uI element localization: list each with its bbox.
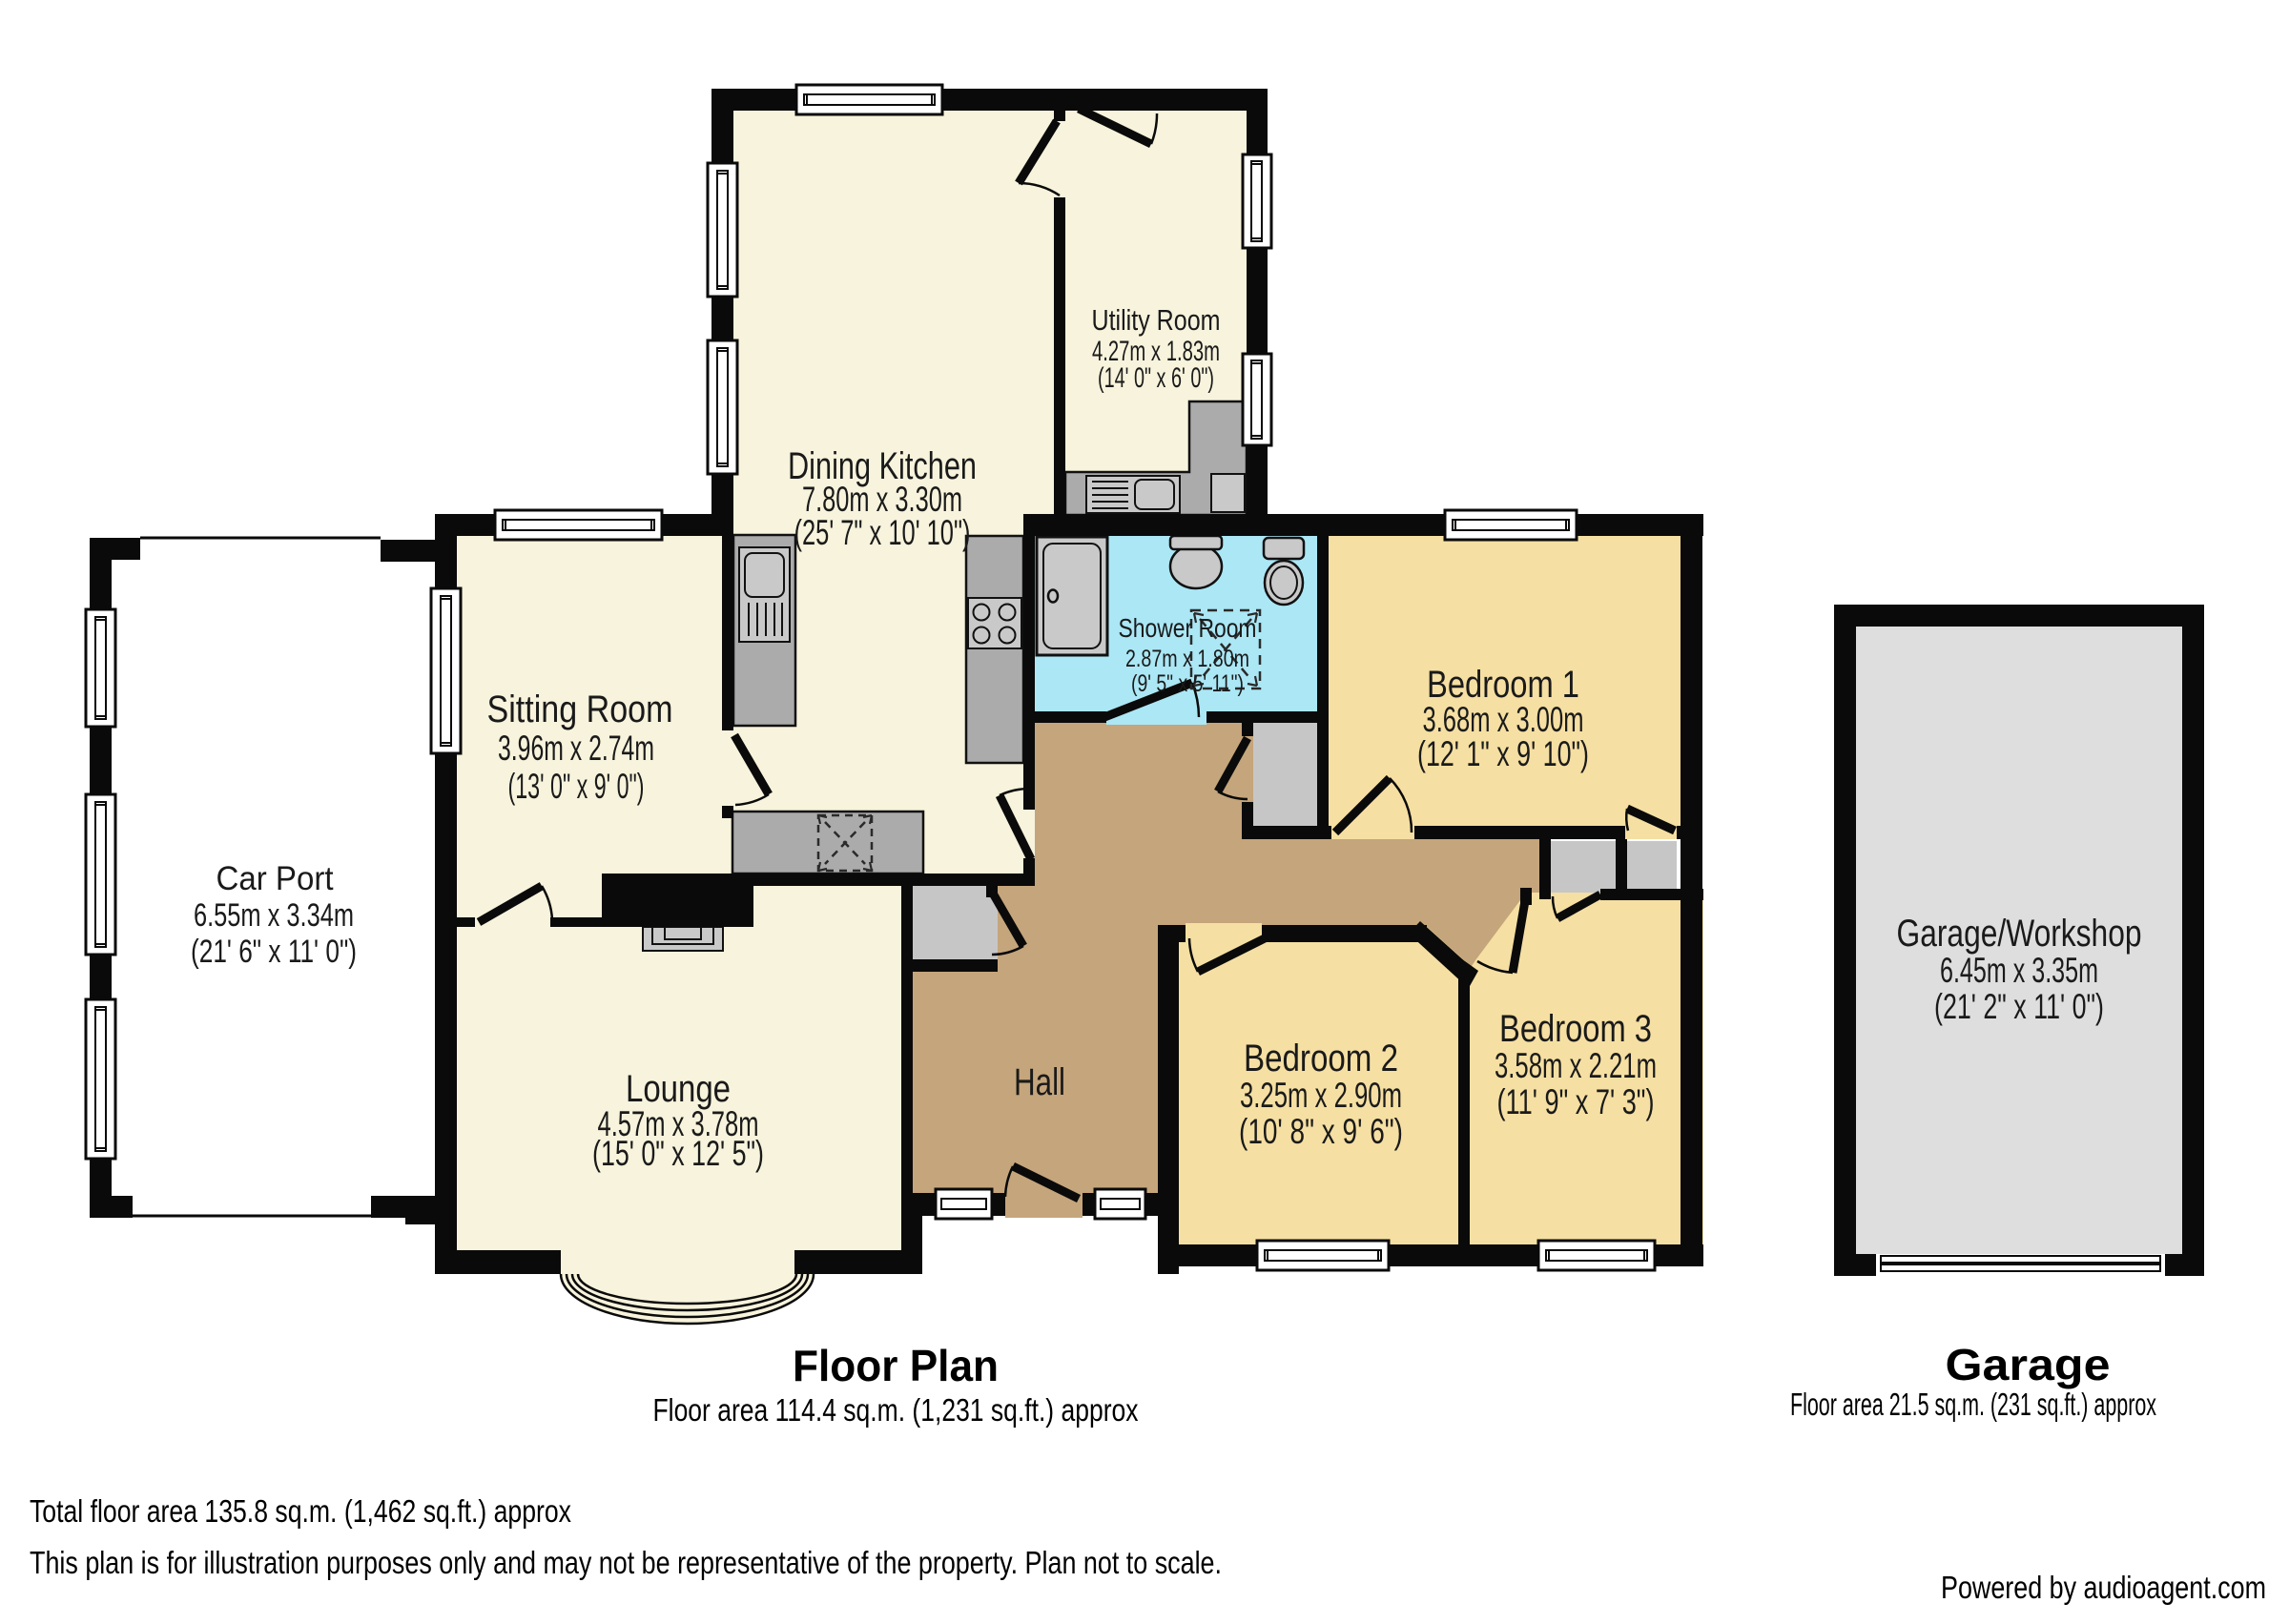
svg-text:Garage/Workshop: Garage/Workshop [1897, 913, 2142, 955]
svg-text:(9' 5" x 5' 11"): (9' 5" x 5' 11") [1131, 670, 1244, 697]
svg-text:Garage: Garage [1946, 1340, 2111, 1389]
svg-text:Bedroom 2: Bedroom 2 [1244, 1038, 1398, 1079]
svg-text:Floor Plan: Floor Plan [793, 1341, 999, 1390]
svg-text:(14' 0" x 6' 0"): (14' 0" x 6' 0") [1098, 362, 1214, 394]
svg-text:3.58m x 2.21m: 3.58m x 2.21m [1495, 1046, 1657, 1085]
svg-text:Sitting Room: Sitting Room [487, 689, 673, 730]
svg-text:(21' 2" x 11' 0"): (21' 2" x 11' 0") [1934, 987, 2104, 1026]
svg-text:3.25m x 2.90m: 3.25m x 2.90m [1240, 1076, 1402, 1115]
svg-text:6.45m x 3.35m: 6.45m x 3.35m [1940, 951, 2098, 990]
svg-text:3.96m x 2.74m: 3.96m x 2.74m [498, 729, 654, 768]
svg-text:Shower Room: Shower Room [1119, 613, 1257, 643]
svg-text:Floor area 21.5 sq.m. (231 sq.: Floor area 21.5 sq.m. (231 sq.ft.) appro… [1790, 1387, 2156, 1422]
svg-text:Bedroom 3: Bedroom 3 [1499, 1008, 1652, 1050]
svg-text:6.55m x 3.34m: 6.55m x 3.34m [194, 897, 354, 934]
svg-text:This plan is for illustration: This plan is for illustration purposes o… [30, 1545, 1222, 1580]
svg-text:Utility Room: Utility Room [1092, 303, 1221, 337]
svg-text:Floor area 114.4 sq.m. (1,231: Floor area 114.4 sq.m. (1,231 sq.ft.) ap… [653, 1392, 1139, 1428]
svg-text:(15' 0" x 12' 5"): (15' 0" x 12' 5") [592, 1134, 764, 1173]
svg-text:Hall: Hall [1014, 1061, 1065, 1103]
svg-text:3.68m x 3.00m: 3.68m x 3.00m [1423, 700, 1584, 739]
svg-text:(25' 7" x 10' 10"): (25' 7" x 10' 10") [794, 513, 971, 552]
svg-text:(21' 6" x 11' 0"): (21' 6" x 11' 0") [191, 934, 357, 970]
svg-text:2.87m x 1.80m: 2.87m x 1.80m [1125, 646, 1249, 672]
svg-text:(13' 0" x 9' 0"): (13' 0" x 9' 0") [508, 767, 645, 806]
svg-text:Powered by audioagent.com: Powered by audioagent.com [1941, 1570, 2266, 1605]
svg-text:(12' 1" x 9' 10"): (12' 1" x 9' 10") [1417, 734, 1589, 773]
svg-text:(11' 9" x 7' 3"): (11' 9" x 7' 3") [1497, 1082, 1655, 1121]
svg-text:(10' 8" x 9' 6"): (10' 8" x 9' 6") [1239, 1112, 1403, 1151]
svg-text:Total floor area 135.8 sq.m. (: Total floor area 135.8 sq.m. (1,462 sq.f… [30, 1493, 571, 1529]
svg-text:Car Port: Car Port [217, 860, 334, 897]
